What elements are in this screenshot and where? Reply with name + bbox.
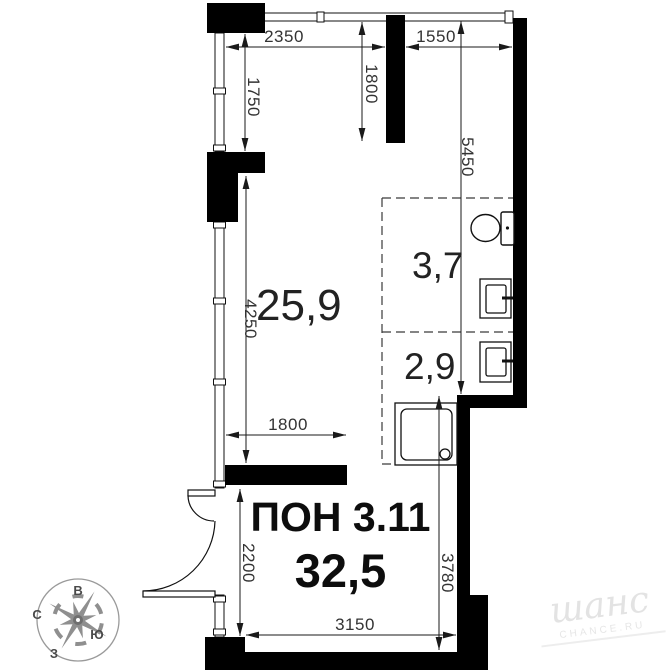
sink-icon-top: [480, 279, 513, 318]
compass-west-label: З: [50, 646, 58, 661]
shower-tray-icon: [395, 403, 457, 465]
dim-label-top-right-width: 1550: [407, 28, 465, 46]
dim-label-top-left-width: 2350: [255, 28, 313, 46]
shower-room-area: 2,9: [404, 346, 455, 388]
sink-icon-bottom: [480, 342, 513, 382]
dim-label-right-wall-height: 5450: [458, 127, 476, 187]
compass-east-label: В: [73, 583, 82, 598]
compass-south-label: Ю: [90, 627, 103, 642]
entry-door-swing: [143, 490, 215, 597]
unit-name: ПОН 3.11: [238, 494, 443, 541]
dim-label-opening-width: 1800: [258, 416, 318, 434]
dim-label-entry-zone-depth: 1800: [362, 54, 380, 114]
main-room-area: 25,9: [256, 281, 342, 331]
compass-north-label: С: [32, 607, 42, 622]
unit-total-area: 32,5: [238, 543, 443, 598]
toilet-icon: [471, 212, 514, 245]
dim-label-upper-window-height: 1750: [244, 67, 262, 127]
bathroom-area: 3,7: [412, 245, 463, 287]
floor-plan: В С Ю З 2350 1550 1750 1800 5450 4250 18…: [0, 0, 670, 670]
compass-rose: В С Ю З: [32, 579, 119, 661]
window-band-left: [214, 33, 226, 637]
dim-label-bottom-width: 3150: [320, 616, 390, 634]
